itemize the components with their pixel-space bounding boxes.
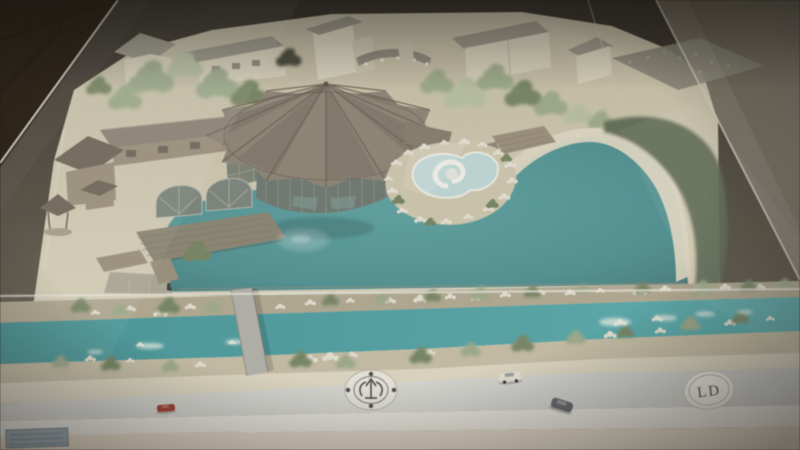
- model-scene: LD: [0, 0, 800, 450]
- photo-architectural-model: LD: [0, 0, 800, 450]
- photo-grain: [0, 0, 800, 450]
